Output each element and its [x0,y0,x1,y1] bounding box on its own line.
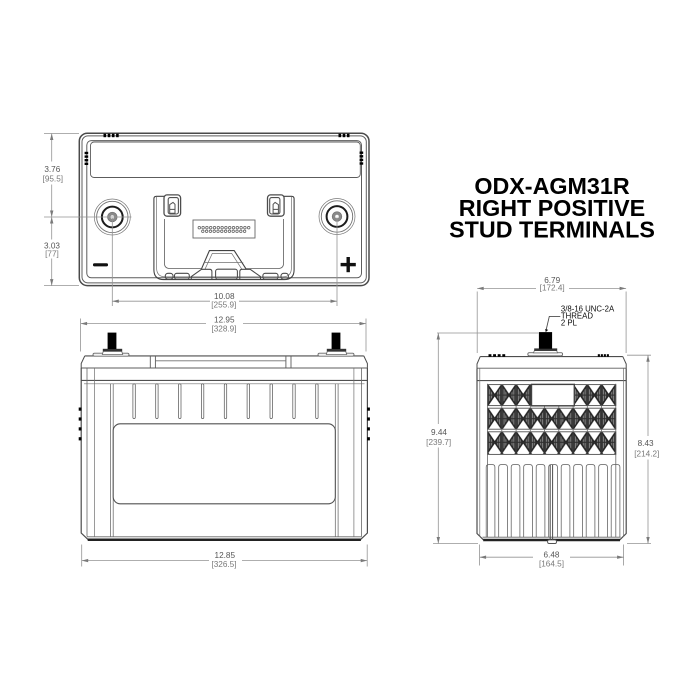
svg-text:8.43: 8.43 [638,439,654,448]
svg-text:[239.7]: [239.7] [426,438,451,447]
svg-text:6.48: 6.48 [544,551,560,560]
svg-text:STUD TERMINALS: STUD TERMINALS [449,216,655,242]
svg-text:9.44: 9.44 [431,428,447,437]
svg-text:12.85: 12.85 [215,551,236,560]
svg-text:3.76: 3.76 [44,165,60,174]
svg-text:[326.5]: [326.5] [211,560,236,569]
svg-text:12.95: 12.95 [214,316,235,325]
svg-text:[214.2]: [214.2] [634,449,659,458]
svg-text:[95.5]: [95.5] [43,174,64,183]
svg-text:[172.4]: [172.4] [540,284,565,293]
svg-text:[255.9]: [255.9] [211,300,236,309]
svg-text:[164.5]: [164.5] [539,560,564,569]
svg-text:[328.9]: [328.9] [211,325,236,334]
svg-text:[77]: [77] [45,250,59,259]
svg-text:2 PL: 2 PL [561,318,578,327]
